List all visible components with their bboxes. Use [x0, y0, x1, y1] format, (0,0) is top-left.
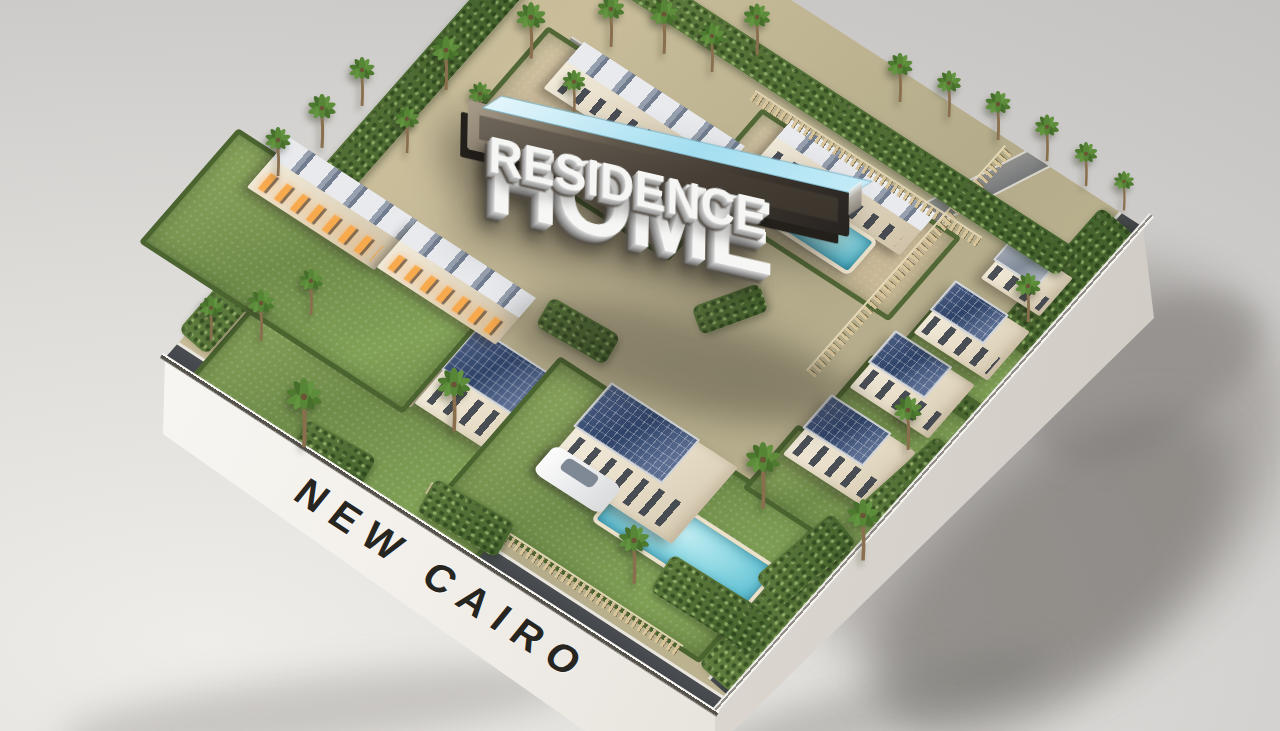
- palm-tree: [610, 514, 658, 586]
- palm-tree: [736, 430, 790, 511]
- palm-tree: [508, 0, 554, 61]
- palm-tree: [258, 118, 298, 178]
- bush: [535, 296, 621, 365]
- palm-tree: [838, 488, 888, 563]
- palm-tree: [880, 44, 920, 104]
- palm-tree: [1028, 106, 1066, 163]
- palm-tree: [292, 260, 330, 317]
- palm-tree: [1068, 134, 1104, 188]
- palm-tree: [556, 62, 592, 116]
- palm-tree: [590, 0, 632, 49]
- palm-tree: [736, 0, 778, 57]
- palm-tree: [692, 14, 732, 74]
- palm-tree: [1108, 164, 1140, 212]
- palm-tree: [300, 84, 344, 150]
- palm-tree: [193, 288, 229, 342]
- palm-tree: [978, 82, 1018, 142]
- palm-tree: [1008, 264, 1048, 324]
- palm-tree: [930, 62, 968, 119]
- palm-tree: [642, 0, 686, 56]
- palm-tree: [276, 366, 332, 450]
- palm-tree: [886, 386, 930, 452]
- palm-tree: [388, 98, 426, 155]
- palm-tree: [342, 48, 382, 108]
- render-scene: NEW CAIRO: [0, 0, 1280, 731]
- palm-tree: [240, 280, 282, 343]
- palm-tree: [428, 356, 480, 434]
